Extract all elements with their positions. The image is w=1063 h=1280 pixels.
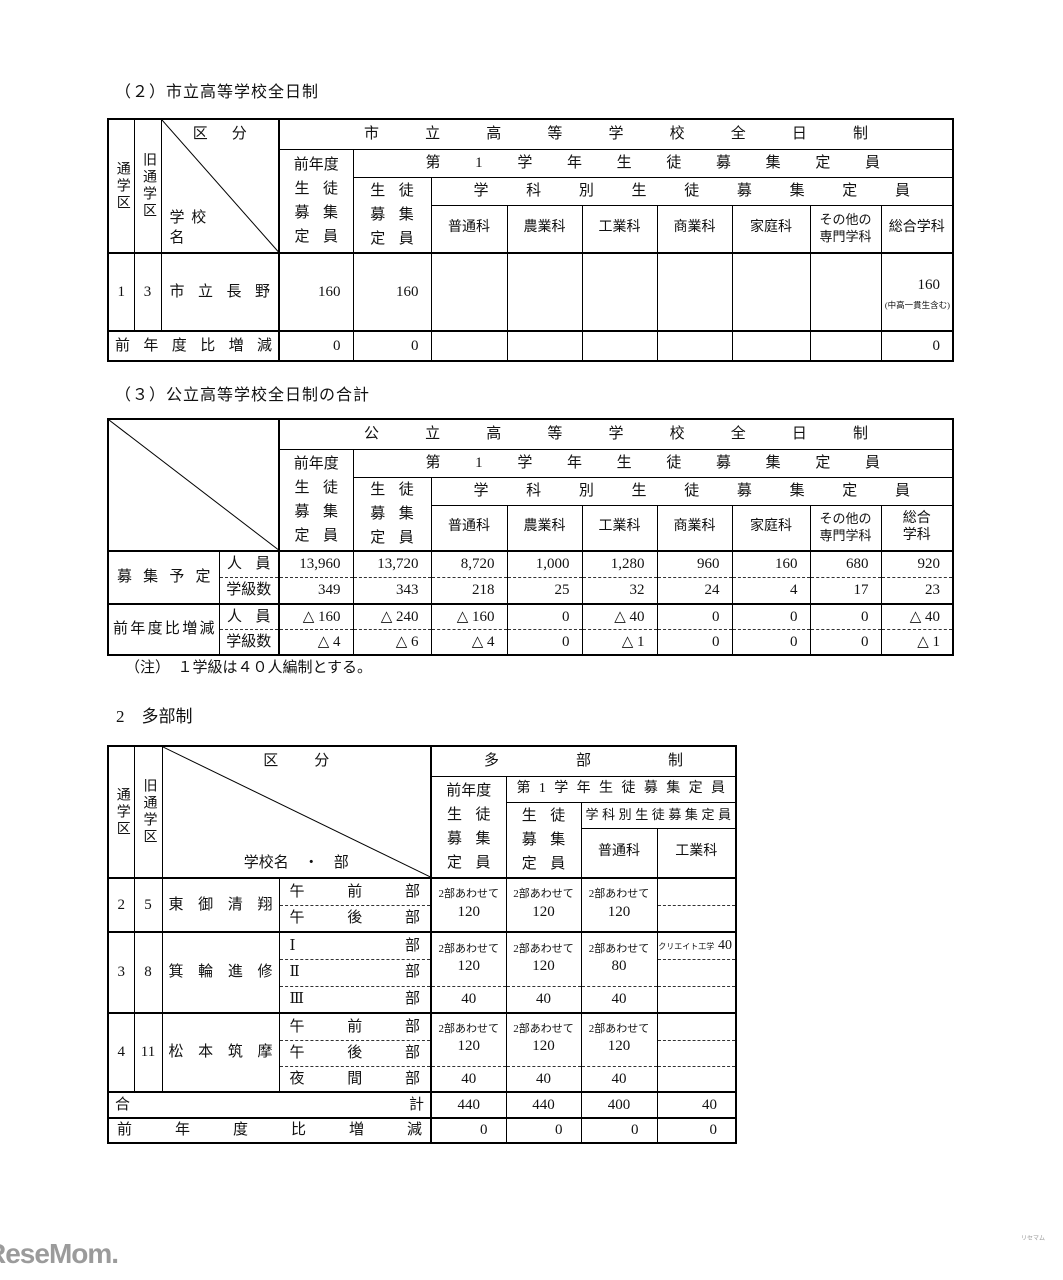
subject-sonota: その他の専門学科 (810, 205, 881, 253)
value-cell: △ 240 (353, 604, 431, 630)
cell-kyutsugakuku: 3 (134, 253, 161, 331)
sub-label-gakkyusu: 学級数 (219, 578, 279, 604)
cell-first-total: 160 (353, 253, 431, 331)
cell-empty (657, 1040, 736, 1066)
subject-shogyoka: 商業科 (657, 205, 732, 253)
value-cell: 218 (431, 578, 507, 604)
subject-futsuka: 普通科 (581, 828, 657, 878)
value-cell: △ 160 (279, 604, 353, 630)
cell-empty (507, 253, 582, 331)
subject-futsuka: 普通科 (431, 506, 507, 551)
diagonal-line (109, 420, 278, 550)
value-cell: 400 (581, 1092, 657, 1118)
cell-school-name: 箕輪進修 (162, 932, 279, 1013)
cell-sogo-value: 160 (中高一貫生含む) (881, 253, 953, 331)
sub-label-jinin: 人員 (219, 551, 279, 578)
header-prev-capacity: 前年度 生徒 募集 定員 (279, 449, 353, 551)
value-cell: 160 (732, 551, 810, 578)
value-cell: 0 (810, 630, 881, 655)
value-cell: 13,720 (353, 551, 431, 578)
value-cell: 0 (507, 630, 582, 655)
cell-merged-value: 2部あわせて120 (431, 932, 506, 986)
header-by-department: 学科別生徒募集定員 (431, 177, 953, 205)
value-cell: 40 (431, 1066, 506, 1092)
value-cell: 960 (657, 551, 732, 578)
cell-part: Ⅱ部 (279, 959, 431, 986)
subject-kogyoka: 工業科 (657, 828, 736, 878)
value-cell: 920 (881, 551, 953, 578)
cell-tsugakuku: 4 (108, 1013, 134, 1092)
cell-merged-value: 2部あわせて120 (581, 1013, 657, 1066)
header-tsugakuku: 通学区 (108, 119, 134, 253)
value-cell: 13,960 (279, 551, 353, 578)
header-kyutsugakuku: 旧通学区 (134, 746, 162, 878)
logo-ruby: リセマム (1021, 1233, 1045, 1242)
section3-title: （３）公立高等学校全日制の合計 (115, 381, 370, 405)
value-cell: △ 1 (582, 630, 657, 655)
header-prev-capacity: 前年度 生徒 募集 定員 (279, 149, 353, 253)
subject-kateika: 家庭科 (732, 506, 810, 551)
row-label-boshu-yotei: 募集予定 (108, 551, 219, 604)
value-cell: 8,720 (431, 551, 507, 578)
header-corner-cell: 区分 学校名 ・ 部 (162, 746, 431, 878)
subject-sogo: 総合学科 (881, 506, 953, 551)
value-cell: △ 1 (881, 630, 953, 655)
value-cell: △ 6 (353, 630, 431, 655)
row-label-diff: 前年度比増減 (108, 331, 279, 361)
value-cell: 0 (732, 604, 810, 630)
value-cell: 0 (732, 630, 810, 655)
cell-merged-value: 2部あわせて120 (506, 932, 581, 986)
value-cell: 17 (810, 578, 881, 604)
table-public-fulltime-total: 公立高等学校全日制 前年度 生徒 募集 定員 第1学年生徒募集定員 生徒 募集 … (107, 418, 954, 656)
cell-empty (582, 253, 657, 331)
header-prev-capacity: 前年度 生徒 募集 定員 (431, 776, 506, 878)
value-cell: 0 (506, 1118, 581, 1143)
cell-empty (657, 1066, 736, 1092)
sub-label-gakkyusu: 学級数 (219, 630, 279, 655)
cell-school-name: 松本筑摩 (162, 1013, 279, 1092)
cell-merged-value: 2部あわせて120 (506, 878, 581, 932)
value-cell: △ 4 (431, 630, 507, 655)
value-cell: 1,000 (507, 551, 582, 578)
cell-empty (657, 905, 736, 932)
cell-part: Ⅰ部 (279, 932, 431, 959)
header-gakkomei: 学校名 (170, 208, 229, 249)
header-first-year: 第1学年生徒募集定員 (353, 149, 953, 177)
value-cell: △ 4 (279, 630, 353, 655)
header-by-department: 学科別生徒募集定員 (431, 477, 953, 506)
cell-school-name: 東御清翔 (162, 878, 279, 932)
header-tsugakuku: 通学区 (108, 746, 134, 878)
cell-diff-first: 0 (353, 331, 431, 361)
value-cell: 4 (732, 578, 810, 604)
header-school-type: 公立高等学校全日制 (279, 419, 953, 449)
header-corner-cell: 区分 学校名 (161, 119, 279, 253)
value-cell: 25 (507, 578, 582, 604)
value-cell: 24 (657, 578, 732, 604)
cell-prev-total: 160 (279, 253, 353, 331)
value-cell: 40 (431, 986, 506, 1013)
subject-kogyoka: 工業科 (582, 205, 657, 253)
cell-empty (431, 331, 507, 361)
subject-shogyoka: 商業科 (657, 506, 732, 551)
value-cell: 440 (431, 1092, 506, 1118)
value-cell: 0 (507, 604, 582, 630)
value-cell: △ 40 (881, 604, 953, 630)
value-cell: 40 (657, 1092, 736, 1118)
cell-empty (657, 986, 736, 1013)
cell-diff-sogo: 0 (881, 331, 953, 361)
value-cell: 349 (279, 578, 353, 604)
footnote: （注） １学級は４０人編制とする。 (125, 656, 372, 677)
value-cell: 0 (657, 1118, 736, 1143)
value-cell: 0 (581, 1118, 657, 1143)
value-cell: 0 (657, 630, 732, 655)
value-cell: 680 (810, 551, 881, 578)
value-cell: 0 (431, 1118, 506, 1143)
value-cell: △ 160 (431, 604, 507, 630)
cell-empty (732, 253, 810, 331)
header-corner-cell (108, 419, 279, 551)
cell-merged-value: 2部あわせて80 (581, 932, 657, 986)
cell-merged-value: 2部あわせて120 (431, 1013, 506, 1066)
subject-sogo: 総合学科 (881, 205, 953, 253)
cell-school-name: 市立長野 (161, 253, 279, 331)
cell-empty (507, 331, 582, 361)
subject-kogyoka: 工業科 (582, 506, 657, 551)
cell-merged-value: 2部あわせて120 (506, 1013, 581, 1066)
value-cell: △ 40 (582, 604, 657, 630)
cell-tsugakuku: 1 (108, 253, 134, 331)
cell-tsugakuku: 3 (108, 932, 134, 1013)
cell-tsugakuku: 2 (108, 878, 134, 932)
value-cell: 343 (353, 578, 431, 604)
cell-empty (657, 331, 732, 361)
table-municipal-fulltime: 通学区 旧通学区 区分 学校名 市立高等学校全日制 前年度 生徒 募集 定員 第… (107, 118, 954, 362)
subject-nogyoka: 農業科 (507, 205, 582, 253)
cell-diff-prev: 0 (279, 331, 353, 361)
subject-sonota: その他の専門学科 (810, 506, 881, 551)
header-school-type: 市立高等学校全日制 (279, 119, 953, 149)
row-label-diff: 前年度比増減 (108, 1118, 431, 1143)
cell-empty (657, 1013, 736, 1040)
cell-merged-value: 2部あわせて120 (431, 878, 506, 932)
header-kubun: 区分 (162, 124, 279, 144)
header-seito-capacity: 生徒 募集 定員 (353, 477, 431, 551)
table-tabusei: 通学区 旧通学区 区分 学校名 ・ 部 多部制 前年度 生徒 募集 定員 第1学… (107, 745, 737, 1144)
row-label-diff: 前年度比増減 (108, 604, 219, 655)
header-seito-capacity: 生徒 募集 定員 (353, 177, 431, 253)
cell-empty (810, 253, 881, 331)
cell-part: 午後部 (279, 1040, 431, 1066)
cell-kyutsugakuku: 11 (134, 1013, 162, 1092)
row-label-total: 合計 (108, 1092, 431, 1118)
value-cell: 0 (657, 604, 732, 630)
value-cell: 440 (506, 1092, 581, 1118)
header-kubun: 区分 (163, 751, 431, 771)
cell-part: Ⅲ部 (279, 986, 431, 1013)
cell-merged-value: 2部あわせて120 (581, 878, 657, 932)
cell-kyutsugakuku: 5 (134, 878, 162, 932)
cell-part: 午前部 (279, 1013, 431, 1040)
header-gakkomei-bu: 学校名 ・ 部 (163, 853, 431, 873)
value-cell: 40 (581, 1066, 657, 1092)
header-first-year: 第1学年生徒募集定員 (506, 776, 736, 802)
value-cell: 40 (506, 986, 581, 1013)
cell-empty (431, 253, 507, 331)
sub-label-jinin: 人員 (219, 604, 279, 630)
cell-kyutsugakuku: 8 (134, 932, 162, 1013)
cell-kougyo-value: クリエイト工学 40 (657, 932, 736, 959)
cell-empty (810, 331, 881, 361)
value-cell: 40 (581, 986, 657, 1013)
logo-brand: ReseMom. (0, 1238, 118, 1269)
cell-part: 夜間部 (279, 1066, 431, 1092)
section2-title: （２）市立高等学校全日制 (115, 78, 319, 102)
subject-kateika: 家庭科 (732, 205, 810, 253)
value-cell: 40 (506, 1066, 581, 1092)
header-by-department: 学科別生徒募集定員 (581, 802, 736, 828)
value-cell: 1,280 (582, 551, 657, 578)
cell-empty (582, 331, 657, 361)
cell-part: 午前部 (279, 878, 431, 905)
header-kyutsugakuku: 旧通学区 (134, 119, 161, 253)
subject-futsuka: 普通科 (431, 205, 507, 253)
value-cell: 32 (582, 578, 657, 604)
cell-empty (657, 959, 736, 986)
cell-empty (657, 253, 732, 331)
section-tabusei-title: 2 多部制 (116, 702, 193, 727)
cell-empty (732, 331, 810, 361)
header-school-type: 多部制 (431, 746, 736, 776)
header-first-year: 第1学年生徒募集定員 (353, 449, 953, 477)
value-cell: 23 (881, 578, 953, 604)
header-seito-capacity: 生徒 募集 定員 (506, 802, 581, 878)
cell-empty (657, 878, 736, 905)
subject-nogyoka: 農業科 (507, 506, 582, 551)
value-cell: 0 (810, 604, 881, 630)
resemom-logo: リセマム ReseMom. (0, 1238, 1049, 1270)
cell-part: 午後部 (279, 905, 431, 932)
